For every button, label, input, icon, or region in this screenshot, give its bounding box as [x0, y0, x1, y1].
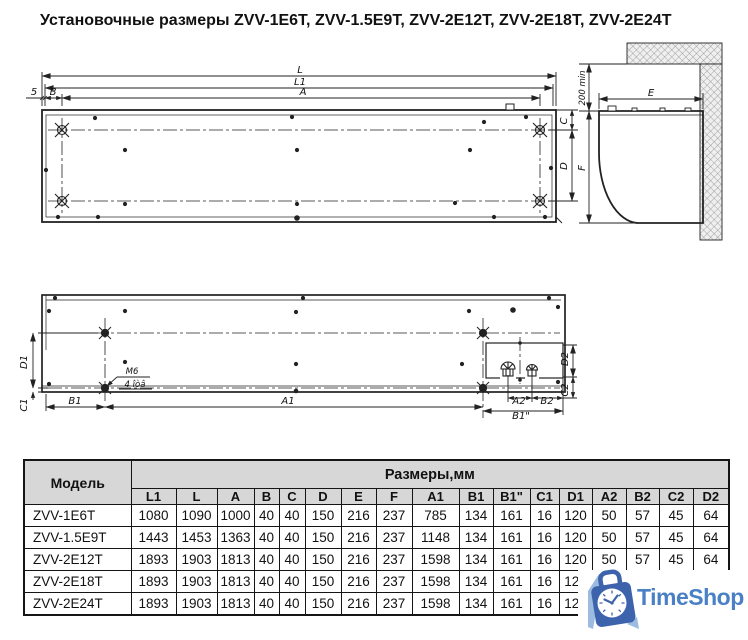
- value-cell: 16: [530, 527, 559, 549]
- value-cell: 1598: [412, 593, 459, 616]
- dim-label-E: E: [648, 88, 655, 99]
- value-cell: 161: [493, 549, 530, 571]
- dim-label-B2: B2: [540, 396, 553, 407]
- value-cell: 1080: [131, 505, 176, 527]
- timeshop-logo-text: TimeShop: [637, 584, 744, 611]
- value-cell: 150: [305, 549, 341, 571]
- value-cell: 40: [279, 527, 305, 549]
- value-cell: 120: [559, 549, 592, 571]
- dim-label-C: C: [559, 117, 570, 124]
- dim-label-B: B: [50, 87, 57, 98]
- column-header: D1: [559, 489, 592, 505]
- model-cell: ZVV-1.5E9T: [24, 527, 131, 549]
- value-cell: 1813: [217, 571, 254, 593]
- value-cell: 1903: [176, 549, 217, 571]
- value-cell: 150: [305, 505, 341, 527]
- sizes-group-header: Размеры,мм: [131, 460, 729, 489]
- value-cell: 134: [459, 593, 493, 616]
- value-cell: 161: [493, 593, 530, 616]
- value-cell: 1363: [217, 527, 254, 549]
- value-cell: 1000: [217, 505, 254, 527]
- column-header: A2: [592, 489, 626, 505]
- dim-label-5: 5: [31, 87, 37, 98]
- dim-label-B1: B1: [68, 396, 81, 407]
- value-cell: 40: [254, 593, 279, 616]
- model-cell: ZVV-2E18T: [24, 571, 131, 593]
- value-cell: 216: [341, 571, 376, 593]
- installation-drawing: L L1 A 5 B C D: [0, 0, 748, 460]
- value-cell: 1443: [131, 527, 176, 549]
- dim-label-D1: D1: [19, 355, 30, 369]
- column-header: B1: [459, 489, 493, 505]
- column-header: E: [341, 489, 376, 505]
- column-header: C1: [530, 489, 559, 505]
- column-header: C: [279, 489, 305, 505]
- value-cell: 237: [376, 593, 412, 616]
- value-cell: 134: [459, 549, 493, 571]
- value-cell: 57: [626, 505, 659, 527]
- dim-label-L: L: [297, 65, 303, 76]
- value-cell: 150: [305, 593, 341, 616]
- value-cell: 237: [376, 571, 412, 593]
- value-cell: 57: [626, 527, 659, 549]
- dim-label-F: F: [577, 165, 588, 171]
- dim-label-D2: D2: [560, 352, 571, 366]
- value-cell: 50: [592, 505, 626, 527]
- model-cell: ZVV-2E12T: [24, 549, 131, 571]
- top-view-drawing: L L1 A 5 B C D: [26, 65, 578, 223]
- column-header: A: [217, 489, 254, 505]
- value-cell: 40: [254, 527, 279, 549]
- table-row: ZVV-1.5E9T144314531363404015021623711481…: [24, 527, 729, 549]
- model-column-header: Модель: [24, 460, 131, 505]
- value-cell: 1893: [131, 549, 176, 571]
- value-cell: 16: [530, 549, 559, 571]
- side-view-drawing: E 200 min F: [577, 43, 722, 240]
- dim-label-A1: A1: [280, 396, 294, 407]
- value-cell: 1893: [131, 593, 176, 616]
- value-cell: 1903: [176, 593, 217, 616]
- value-cell: 45: [659, 505, 693, 527]
- dim-label-D: D: [559, 162, 570, 170]
- value-cell: 40: [254, 571, 279, 593]
- bottom-view-drawing: D1 C1 B1 A1 М6 4 îòâ A2 B2 В1" D2 C2: [19, 295, 577, 422]
- value-cell: 1148: [412, 527, 459, 549]
- value-cell: 64: [693, 505, 729, 527]
- column-header: B1": [493, 489, 530, 505]
- value-cell: 16: [530, 571, 559, 593]
- column-header: D2: [693, 489, 729, 505]
- value-cell: 40: [279, 571, 305, 593]
- column-header: L: [176, 489, 217, 505]
- value-cell: 1598: [412, 571, 459, 593]
- column-header: L1: [131, 489, 176, 505]
- value-cell: 216: [341, 505, 376, 527]
- value-cell: 1598: [412, 549, 459, 571]
- value-cell: 120: [559, 527, 592, 549]
- value-cell: 40: [279, 593, 305, 616]
- value-cell: 57: [626, 549, 659, 571]
- value-cell: 40: [254, 549, 279, 571]
- model-cell: ZVV-1E6T: [24, 505, 131, 527]
- value-cell: 150: [305, 571, 341, 593]
- datasheet-page: Установочные размеры ZVV-1E6T, ZVV-1.5E9…: [0, 0, 748, 640]
- value-cell: 40: [279, 549, 305, 571]
- value-cell: 237: [376, 549, 412, 571]
- dim-label-C1: C1: [19, 398, 30, 411]
- model-cell: ZVV-2E24T: [24, 593, 131, 616]
- value-cell: 161: [493, 505, 530, 527]
- value-cell: 216: [341, 527, 376, 549]
- value-cell: 1813: [217, 593, 254, 616]
- column-header: D: [305, 489, 341, 505]
- value-cell: 50: [592, 549, 626, 571]
- value-cell: 40: [279, 505, 305, 527]
- value-cell: 1453: [176, 527, 217, 549]
- dim-label-M6: М6: [126, 367, 139, 377]
- value-cell: 45: [659, 527, 693, 549]
- dim-label-B1s: В1": [512, 411, 530, 422]
- value-cell: 50: [592, 527, 626, 549]
- value-cell: 216: [341, 549, 376, 571]
- column-header: B: [254, 489, 279, 505]
- column-header: B2: [626, 489, 659, 505]
- value-cell: 64: [693, 527, 729, 549]
- dim-label-C2: C2: [560, 383, 571, 396]
- value-cell: 237: [376, 505, 412, 527]
- value-cell: 161: [493, 571, 530, 593]
- value-cell: 134: [459, 571, 493, 593]
- value-cell: 40: [254, 505, 279, 527]
- dim-label-200min: 200 min: [578, 71, 588, 106]
- column-header: A1: [412, 489, 459, 505]
- value-cell: 120: [559, 505, 592, 527]
- column-header: C2: [659, 489, 693, 505]
- value-cell: 134: [459, 505, 493, 527]
- value-cell: 785: [412, 505, 459, 527]
- value-cell: 150: [305, 527, 341, 549]
- value-cell: 1813: [217, 549, 254, 571]
- value-cell: 134: [459, 527, 493, 549]
- value-cell: 64: [693, 549, 729, 571]
- dim-label-A2: A2: [511, 396, 525, 407]
- value-cell: 1893: [131, 571, 176, 593]
- timeshop-logo-icon: [585, 569, 643, 635]
- value-cell: 237: [376, 527, 412, 549]
- column-header: F: [376, 489, 412, 505]
- value-cell: 1903: [176, 571, 217, 593]
- value-cell: 161: [493, 527, 530, 549]
- table-row: ZVV-1E6T10801090100040401502162377851341…: [24, 505, 729, 527]
- value-cell: 16: [530, 505, 559, 527]
- table-row: ZVV-2E12T1893190318134040150216237159813…: [24, 549, 729, 571]
- value-cell: 45: [659, 549, 693, 571]
- dim-label-A: A: [299, 87, 307, 98]
- value-cell: 1090: [176, 505, 217, 527]
- dim-label-holes: 4 îòâ: [125, 379, 146, 390]
- value-cell: 16: [530, 593, 559, 616]
- value-cell: 216: [341, 593, 376, 616]
